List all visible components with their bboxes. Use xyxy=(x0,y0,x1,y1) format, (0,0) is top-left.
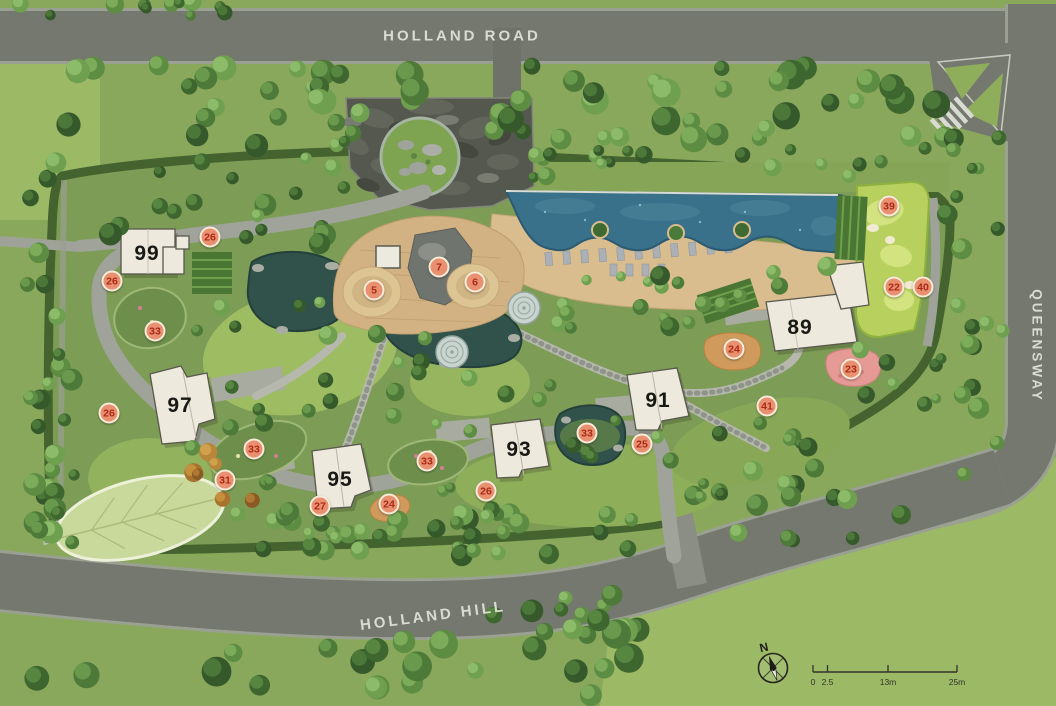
building-label-95: 95 xyxy=(327,468,352,492)
deck-pavilion xyxy=(376,246,400,268)
arrival-rock-garden xyxy=(381,118,459,196)
amenity-marker-33: 33 xyxy=(417,451,438,472)
amenity-marker-41: 41 xyxy=(757,396,778,417)
amenity-marker-26: 26 xyxy=(200,227,221,248)
amenity-marker-24: 24 xyxy=(724,339,745,360)
amenity-marker-26: 26 xyxy=(476,481,497,502)
scale-tick-label: 2.5 xyxy=(822,677,834,687)
amenity-marker-33: 33 xyxy=(244,439,265,460)
amenity-marker-33: 33 xyxy=(145,321,166,342)
queensway-label: QUEENSWAY xyxy=(1030,289,1045,403)
amenity-marker-6: 6 xyxy=(465,272,486,293)
building-label-93: 93 xyxy=(506,438,531,462)
building-label-91: 91 xyxy=(645,389,670,413)
amenity-marker-26: 26 xyxy=(99,403,120,424)
amenity-marker-40: 40 xyxy=(913,277,934,298)
building-label-99: 99 xyxy=(134,242,159,266)
amenity-marker-22: 22 xyxy=(884,277,905,298)
amenity-marker-27: 27 xyxy=(310,496,331,517)
scale-tick-label: 25m xyxy=(949,677,966,687)
amenity-marker-23: 23 xyxy=(841,359,862,380)
building-label-89: 89 xyxy=(787,316,812,340)
site-plan-canvas: N 02.513m25m HOLLAND ROAD QUEENSWAY HOLL… xyxy=(0,0,1056,706)
amenity-marker-33: 33 xyxy=(577,423,598,444)
scale-tick-label: 13m xyxy=(880,677,897,687)
scale-tick-label: 0 xyxy=(811,677,816,687)
amenity-marker-39: 39 xyxy=(879,196,900,217)
amenity-marker-31: 31 xyxy=(215,470,236,491)
site-plan-illustration: N 02.513m25m xyxy=(0,0,1056,706)
amenity-marker-26: 26 xyxy=(102,271,123,292)
amenity-marker-24: 24 xyxy=(379,494,400,515)
amenity-marker-5: 5 xyxy=(364,280,385,301)
building-label-97: 97 xyxy=(167,394,192,418)
amenity-marker-7: 7 xyxy=(429,257,450,278)
holland-road-label: HOLLAND ROAD xyxy=(383,28,541,45)
amenity-marker-25: 25 xyxy=(632,434,653,455)
